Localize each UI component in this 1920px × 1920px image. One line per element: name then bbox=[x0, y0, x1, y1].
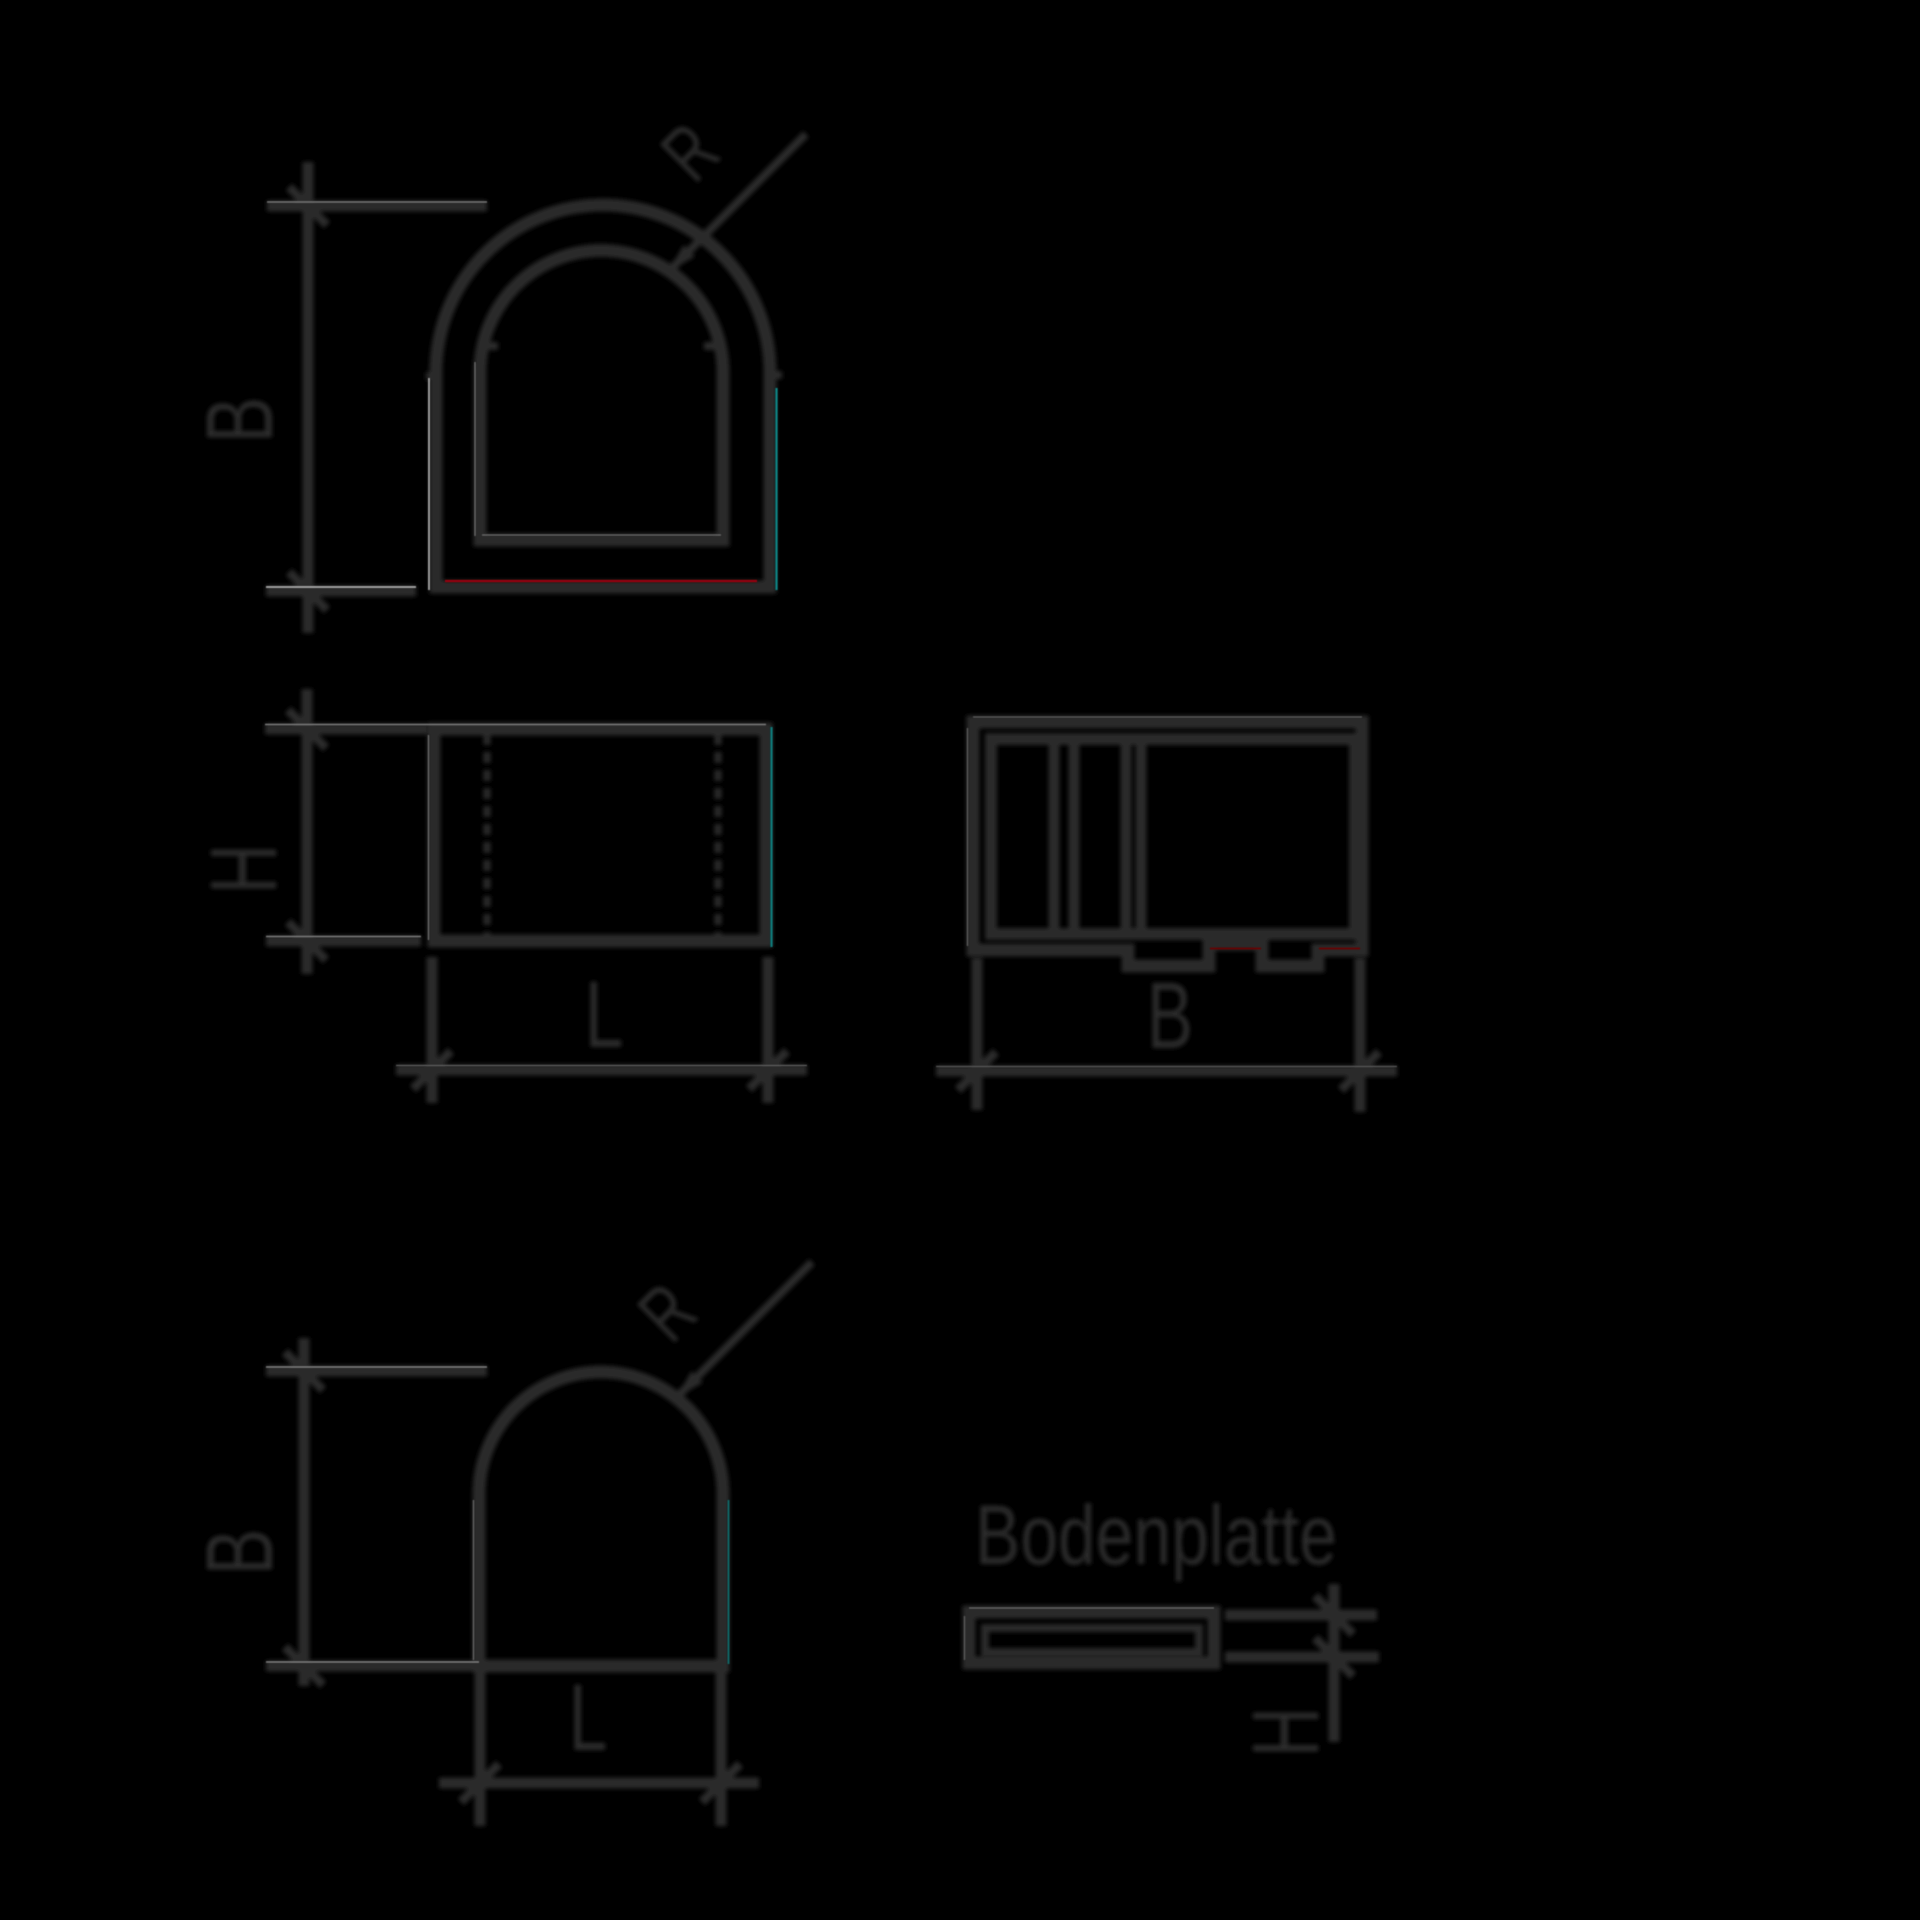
svg-text:B: B bbox=[186, 397, 292, 443]
svg-text:B: B bbox=[1147, 962, 1193, 1068]
svg-text:H: H bbox=[190, 844, 296, 894]
svg-text:L: L bbox=[569, 1664, 608, 1770]
svg-text:H: H bbox=[1232, 1707, 1338, 1757]
svg-text:Bodenplatte: Bodenplatte bbox=[975, 1488, 1337, 1582]
svg-text:L: L bbox=[585, 961, 624, 1067]
svg-text:B: B bbox=[186, 1529, 292, 1575]
